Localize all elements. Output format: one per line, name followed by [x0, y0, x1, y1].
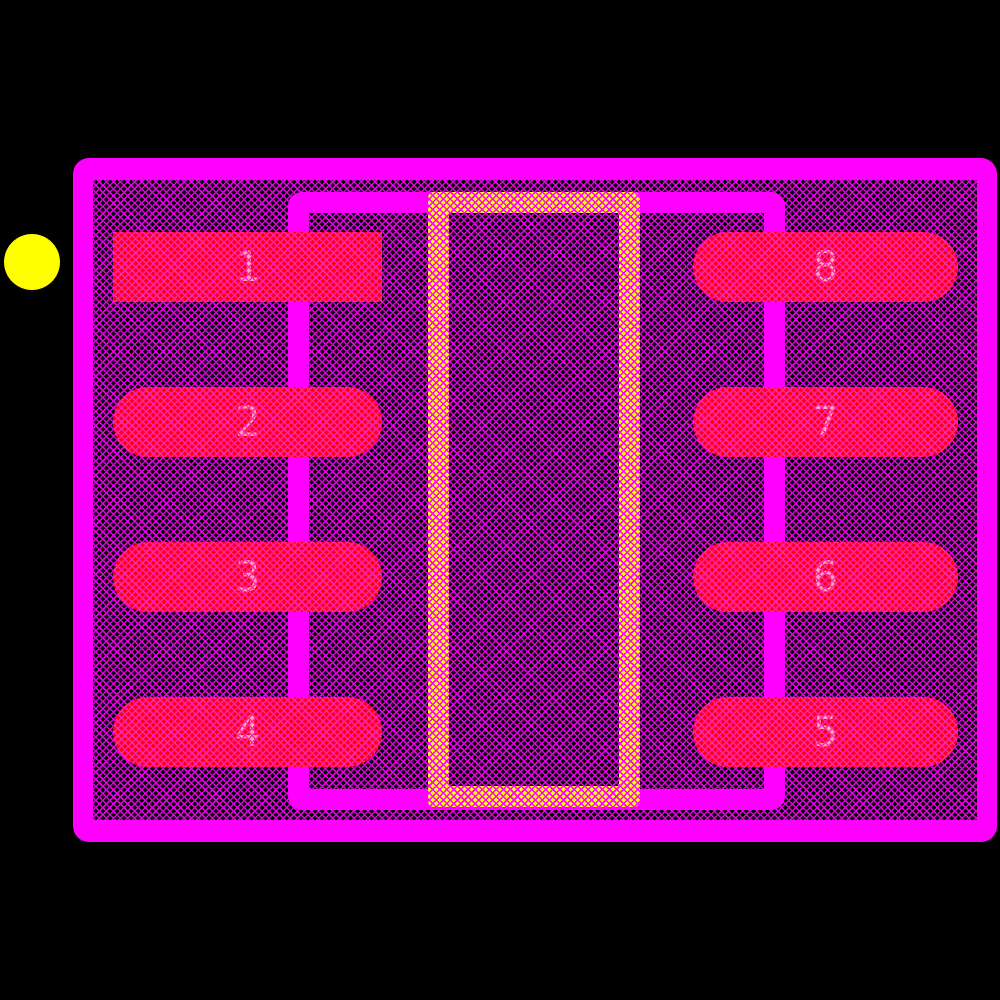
pad-number: 4 — [235, 711, 260, 753]
center-cutout-outline — [428, 192, 640, 807]
pad-number: 5 — [813, 711, 838, 753]
pad-6[interactable]: 6 — [693, 542, 958, 612]
pad-number: 3 — [235, 556, 260, 598]
pin1-marker-circle — [4, 234, 60, 290]
pad-1[interactable]: 1 — [113, 232, 382, 302]
pad-number: 8 — [813, 246, 838, 288]
pad-number: 6 — [813, 556, 838, 598]
pad-4[interactable]: 4 — [113, 697, 382, 767]
pad-number: 2 — [235, 401, 260, 443]
footprint-canvas: 1 2 3 4 8 7 6 5 — [0, 0, 1000, 1000]
pad-number: 7 — [813, 401, 838, 443]
pad-3[interactable]: 3 — [113, 542, 382, 612]
pad-7[interactable]: 7 — [693, 387, 958, 457]
pad-8[interactable]: 8 — [693, 232, 958, 302]
center-cutout-area — [449, 213, 619, 786]
pad-5[interactable]: 5 — [693, 697, 958, 767]
pad-2[interactable]: 2 — [113, 387, 382, 457]
pad-number: 1 — [235, 246, 260, 288]
